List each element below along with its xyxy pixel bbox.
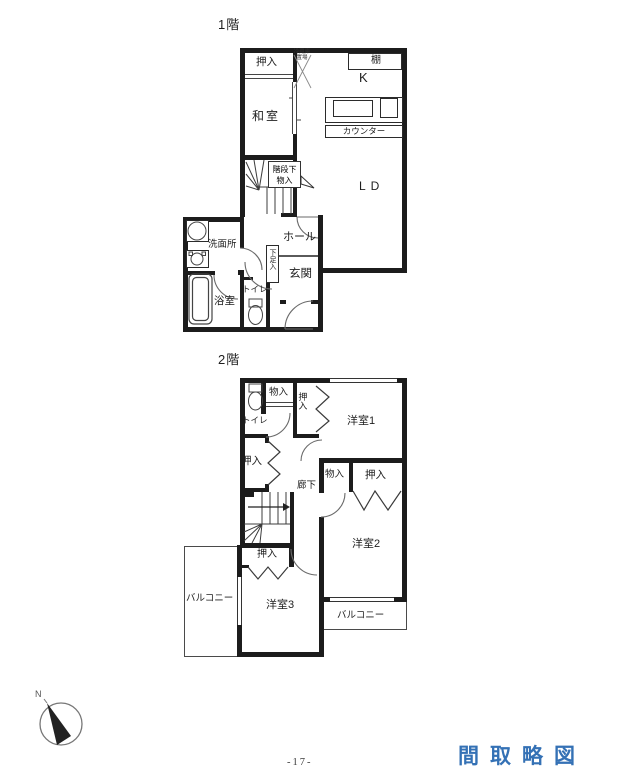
corridor-label: 廊下 — [297, 481, 316, 492]
room-label-toilet-1f: トイレ — [242, 285, 268, 295]
room-label-room2: 洋室2 — [352, 538, 380, 551]
floorplan-page: 階段下 物入 冷蔵庫 置場 — [0, 0, 621, 780]
room-label-toilet-2f: トイレ — [242, 416, 268, 426]
storage-mid-label: 物入 — [325, 470, 344, 481]
room-label-genkan: 玄関 — [289, 268, 312, 281]
plan-graphics — [0, 0, 621, 780]
room-label-ld: LD — [359, 180, 384, 194]
callout-pointer — [301, 176, 314, 188]
balcony-bottom-label: バルコニー — [337, 611, 384, 622]
sink-icon — [188, 222, 206, 240]
stairs-up-arrow — [248, 503, 290, 511]
bathtub-icon — [189, 274, 212, 324]
stair-storage-callout: 階段下 物入 — [268, 161, 301, 188]
room-label-room1: 洋室1 — [347, 415, 375, 428]
counter-label: カウンター — [325, 127, 403, 137]
closet-mid-label: 押入 — [365, 469, 386, 481]
page-title: 間取略図 — [458, 744, 586, 768]
callout-line1: 階段下 — [269, 164, 300, 175]
shelf-label: 棚 — [371, 55, 381, 67]
floor2-label: 2階 — [218, 353, 240, 368]
fridge-line2: 置場 — [291, 55, 313, 61]
compass-icon — [40, 699, 82, 745]
fridge-space-label: 冷蔵庫 置場 — [291, 49, 313, 61]
balcony-left-label: バルコニー — [186, 594, 233, 605]
compass-north-label: N — [35, 689, 42, 699]
room-label-oshiire-1f: 押入 — [256, 56, 277, 68]
washing-machine-icon — [189, 252, 206, 265]
room-label-hall: ホール — [283, 231, 316, 244]
shoebox-label: 下足入 — [268, 249, 276, 270]
storage-top-label: 物入 — [269, 388, 288, 399]
room-label-room3: 洋室3 — [266, 599, 294, 612]
toilet-2f-icon — [249, 384, 263, 410]
sliding-door-ticks — [289, 98, 301, 120]
stairs-2f-icon — [244, 492, 290, 543]
room-label-kitchen: K — [359, 71, 368, 86]
closet-hall-label: 押入 — [241, 455, 262, 467]
callout-line2: 物入 — [269, 175, 300, 186]
room-label-bath: 浴室 — [214, 295, 235, 307]
page-number: -17- — [287, 757, 313, 769]
closet-room3-label: 押入 — [257, 549, 277, 561]
closet-room1-label: 押入 — [297, 392, 307, 410]
room-label-washitsu: 和室 — [252, 110, 280, 124]
toilet-1f-icon — [249, 299, 263, 325]
room-label-senmenjo: 洗面所 — [208, 240, 237, 251]
floor1-label: 1階 — [218, 18, 240, 33]
